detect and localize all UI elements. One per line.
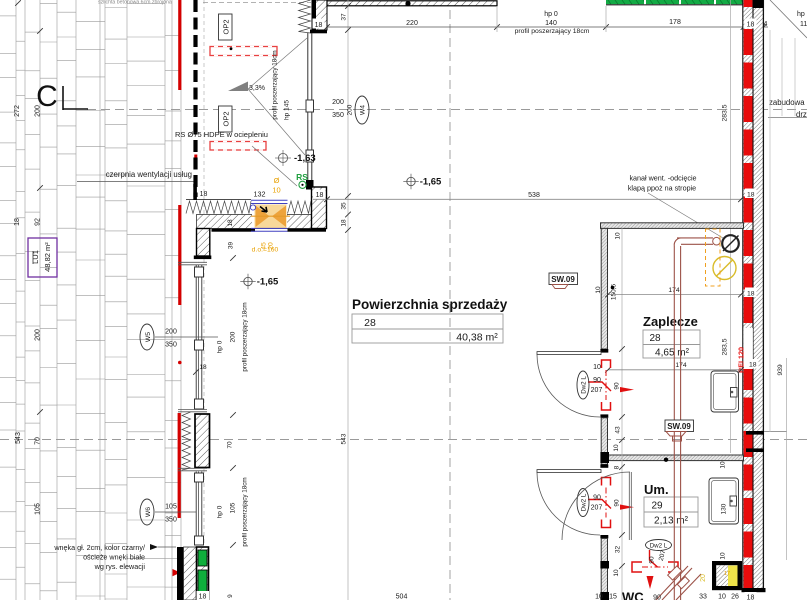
svg-text:OP2: OP2	[222, 111, 231, 126]
svg-text:20: 20	[700, 574, 707, 582]
svg-text:178: 178	[669, 19, 681, 26]
svg-text:29: 29	[651, 501, 663, 512]
svg-text:200: 200	[332, 99, 344, 106]
svg-text:RS Ø75 HDPE w ociepleniu: RS Ø75 HDPE w ociepleniu	[175, 130, 268, 139]
svg-text:90: 90	[653, 595, 661, 600]
svg-text:48,82 m²: 48,82 m²	[43, 242, 52, 272]
svg-text:profil poszerzający 18cm: profil poszerzający 18cm	[242, 477, 249, 546]
svg-text:czerpnia wentylacji usług: czerpnia wentylacji usług	[106, 170, 192, 179]
svg-text:140: 140	[545, 20, 557, 27]
svg-text:543: 543	[341, 433, 348, 444]
svg-text:18: 18	[200, 191, 208, 198]
svg-text:350: 350	[332, 112, 344, 119]
svg-text:207: 207	[591, 505, 603, 512]
svg-text:200: 200	[347, 104, 354, 115]
svg-text:kanał went. -odcięcie: kanał went. -odcięcie	[629, 174, 696, 183]
svg-text:105: 105	[230, 502, 237, 513]
svg-text:REI 120: REI 120	[737, 347, 746, 373]
svg-text:-1,65: -1,65	[420, 177, 442, 188]
svg-text:WC: WC	[622, 590, 644, 600]
svg-text:hp 145: hp 145	[284, 100, 291, 120]
svg-text:RS: RS	[296, 172, 308, 182]
svg-text:543: 543	[15, 432, 22, 444]
svg-text:200: 200	[165, 329, 177, 336]
svg-text:Zaplecze: Zaplecze	[643, 314, 698, 329]
svg-text:90: 90	[593, 495, 601, 502]
svg-text:504: 504	[396, 594, 408, 600]
svg-text:-1,65: -1,65	[257, 277, 279, 288]
svg-text:SW.09: SW.09	[667, 422, 691, 431]
svg-text:220: 220	[406, 20, 418, 27]
svg-text:Ø: Ø	[274, 176, 280, 185]
svg-text:2,13 m²: 2,13 m²	[654, 516, 689, 527]
svg-text:LU1: LU1	[31, 250, 40, 264]
svg-text:105: 105	[165, 504, 177, 511]
svg-text:17: 17	[724, 571, 730, 577]
svg-text:90: 90	[614, 499, 621, 507]
svg-text:-1,63: -1,63	[294, 153, 316, 164]
svg-text:hp 0: hp 0	[217, 505, 224, 518]
svg-text:9: 9	[227, 594, 234, 598]
svg-text:8: 8	[614, 465, 621, 469]
svg-text:200: 200	[230, 331, 237, 342]
svg-text:10: 10	[613, 444, 620, 452]
svg-text:35: 35	[341, 202, 348, 210]
svg-text:W5: W5	[145, 332, 152, 342]
svg-text:profil poszerzający 18cm: profil poszerzający 18cm	[272, 50, 279, 119]
svg-text:18: 18	[747, 22, 755, 29]
svg-text:klapą ppoż na stropie: klapą ppoż na stropie	[628, 184, 696, 193]
svg-text:hp 1: hp 1	[797, 11, 807, 18]
svg-text:272: 272	[14, 105, 21, 117]
svg-text:70: 70	[227, 441, 234, 449]
svg-text:profil poszerzający 18cm: profil poszerzający 18cm	[515, 28, 590, 35]
svg-text:32: 32	[615, 546, 622, 554]
svg-text:4,65 m²: 4,65 m²	[655, 348, 690, 359]
svg-text:hp 0: hp 0	[544, 11, 558, 18]
svg-text:10: 10	[718, 594, 726, 600]
svg-text:105: 105	[35, 503, 42, 515]
svg-text:18: 18	[315, 22, 323, 29]
svg-text:11: 11	[800, 21, 807, 28]
svg-text:283,5: 283,5	[722, 104, 729, 121]
svg-text:Powierzchnia sprzedaży: Powierzchnia sprzedaży	[352, 297, 508, 312]
svg-text:939: 939	[777, 364, 784, 376]
svg-text:W4: W4	[360, 105, 367, 115]
svg-text:90: 90	[649, 556, 656, 564]
svg-text:10: 10	[615, 232, 622, 240]
svg-text:10: 10	[272, 186, 280, 195]
svg-text:37: 37	[341, 13, 348, 21]
svg-text:28: 28	[649, 333, 661, 344]
svg-text:33: 33	[699, 594, 707, 600]
svg-text:350: 350	[165, 517, 177, 524]
svg-text:18: 18	[199, 364, 207, 371]
svg-text:zabudowa m: zabudowa m	[769, 98, 807, 107]
svg-text:Dw2 L: Dw2 L	[581, 493, 588, 511]
svg-text:200: 200	[35, 329, 42, 341]
svg-text:10: 10	[595, 594, 603, 600]
svg-text:18: 18	[747, 291, 755, 298]
svg-text:wnęka gł. 2cm, kolor czarny/: wnęka gł. 2cm, kolor czarny/	[53, 543, 145, 552]
svg-text:132: 132	[254, 190, 266, 199]
svg-text:70: 70	[35, 437, 42, 445]
svg-text:39: 39	[228, 242, 235, 250]
svg-text:Dw2 L: Dw2 L	[581, 376, 588, 394]
svg-text:18: 18	[199, 594, 207, 600]
svg-text:43: 43	[615, 426, 622, 434]
svg-text:207: 207	[591, 387, 603, 394]
svg-text:10: 10	[720, 552, 727, 560]
svg-text:200: 200	[35, 105, 42, 117]
svg-text:Dw2 L: Dw2 L	[650, 543, 668, 550]
svg-text:Um.: Um.	[644, 482, 669, 497]
svg-text:10: 10	[593, 364, 601, 371]
svg-text:profil poszerzający 18cm: profil poszerzający 18cm	[242, 302, 249, 371]
svg-text:OP2: OP2	[222, 19, 231, 34]
svg-text:18: 18	[749, 362, 757, 369]
svg-text:40,38 m²: 40,38 m²	[456, 332, 498, 344]
svg-text:18: 18	[14, 218, 21, 226]
svg-text:18: 18	[341, 219, 348, 227]
svg-text:wg rys. elewacji: wg rys. elewacji	[94, 562, 146, 571]
svg-text:90: 90	[593, 377, 601, 384]
svg-text:26: 26	[731, 594, 739, 600]
svg-text:10: 10	[613, 569, 620, 577]
svg-text:18: 18	[747, 192, 755, 199]
svg-text:90: 90	[614, 382, 621, 390]
svg-text:28: 28	[364, 317, 376, 329]
svg-text:538: 538	[528, 192, 540, 199]
svg-text:130: 130	[721, 503, 728, 514]
svg-text:W6: W6	[145, 507, 152, 517]
svg-text:92: 92	[35, 218, 42, 226]
svg-text:18: 18	[747, 595, 755, 600]
svg-text:ościeże wnęki białe: ościeże wnęki białe	[83, 553, 145, 562]
svg-text:4: 4	[764, 21, 768, 28]
svg-text:10: 10	[595, 286, 602, 294]
svg-text:15: 15	[609, 594, 617, 600]
svg-text:hp 0: hp 0	[217, 340, 224, 353]
svg-text:350: 350	[165, 342, 177, 349]
svg-text:283,5: 283,5	[722, 338, 729, 355]
svg-text:18: 18	[227, 219, 234, 227]
svg-text:d.o.=160: d.o.=160	[252, 247, 279, 254]
svg-text:SW.09: SW.09	[551, 275, 575, 284]
svg-text:18: 18	[316, 192, 324, 199]
svg-text:10: 10	[720, 461, 727, 469]
svg-text:szlichta betonowa 6cm zbrojona: szlichta betonowa 6cm zbrojona	[98, 0, 172, 6]
